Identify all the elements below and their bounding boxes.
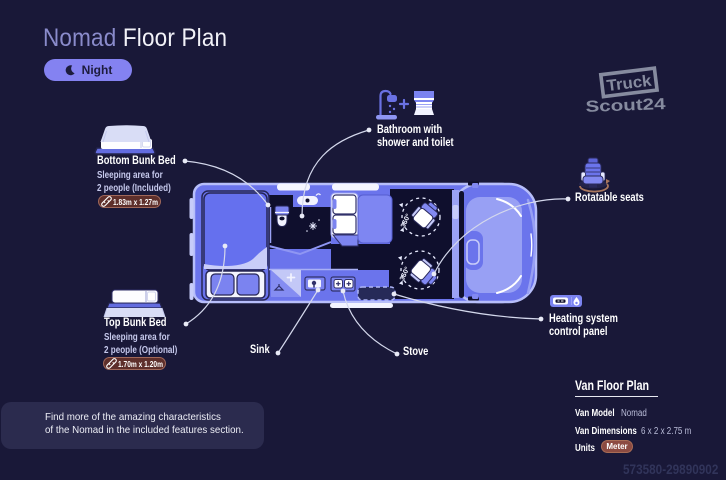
svg-text:Scout24: Scout24 [585, 96, 666, 116]
